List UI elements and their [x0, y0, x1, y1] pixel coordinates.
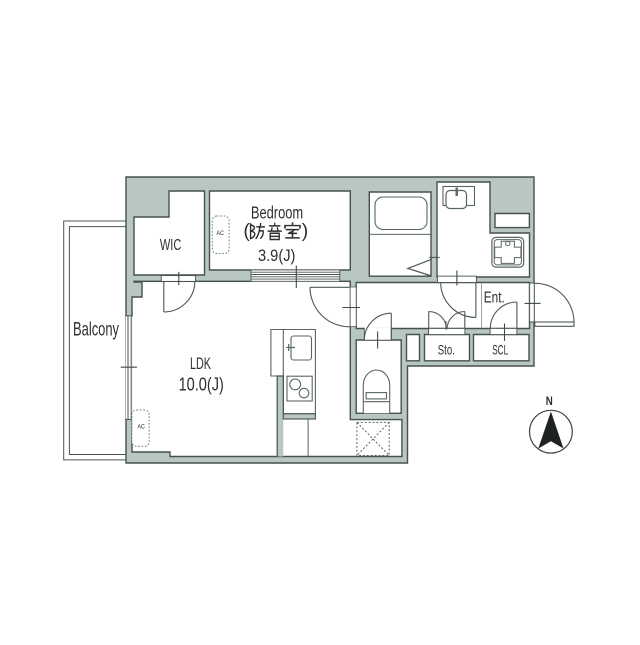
svg-text:AC: AC [138, 425, 146, 431]
svg-text:Ent.: Ent. [484, 289, 505, 306]
svg-text:AC: AC [216, 231, 224, 237]
svg-text:Sto.: Sto. [438, 341, 455, 357]
svg-text:WIC: WIC [160, 237, 182, 254]
svg-text:3.9(J): 3.9(J) [258, 246, 296, 265]
svg-text:Bedroom: Bedroom [251, 202, 303, 222]
svg-text:10.0(J): 10.0(J) [179, 375, 224, 395]
svg-text:(: ( [243, 220, 250, 242]
svg-text:SCL: SCL [492, 341, 508, 357]
svg-text:LDK: LDK [190, 354, 211, 373]
svg-text:Balcony: Balcony [73, 319, 119, 341]
svg-text:N: N [546, 394, 553, 408]
svg-text:): ) [302, 220, 309, 242]
